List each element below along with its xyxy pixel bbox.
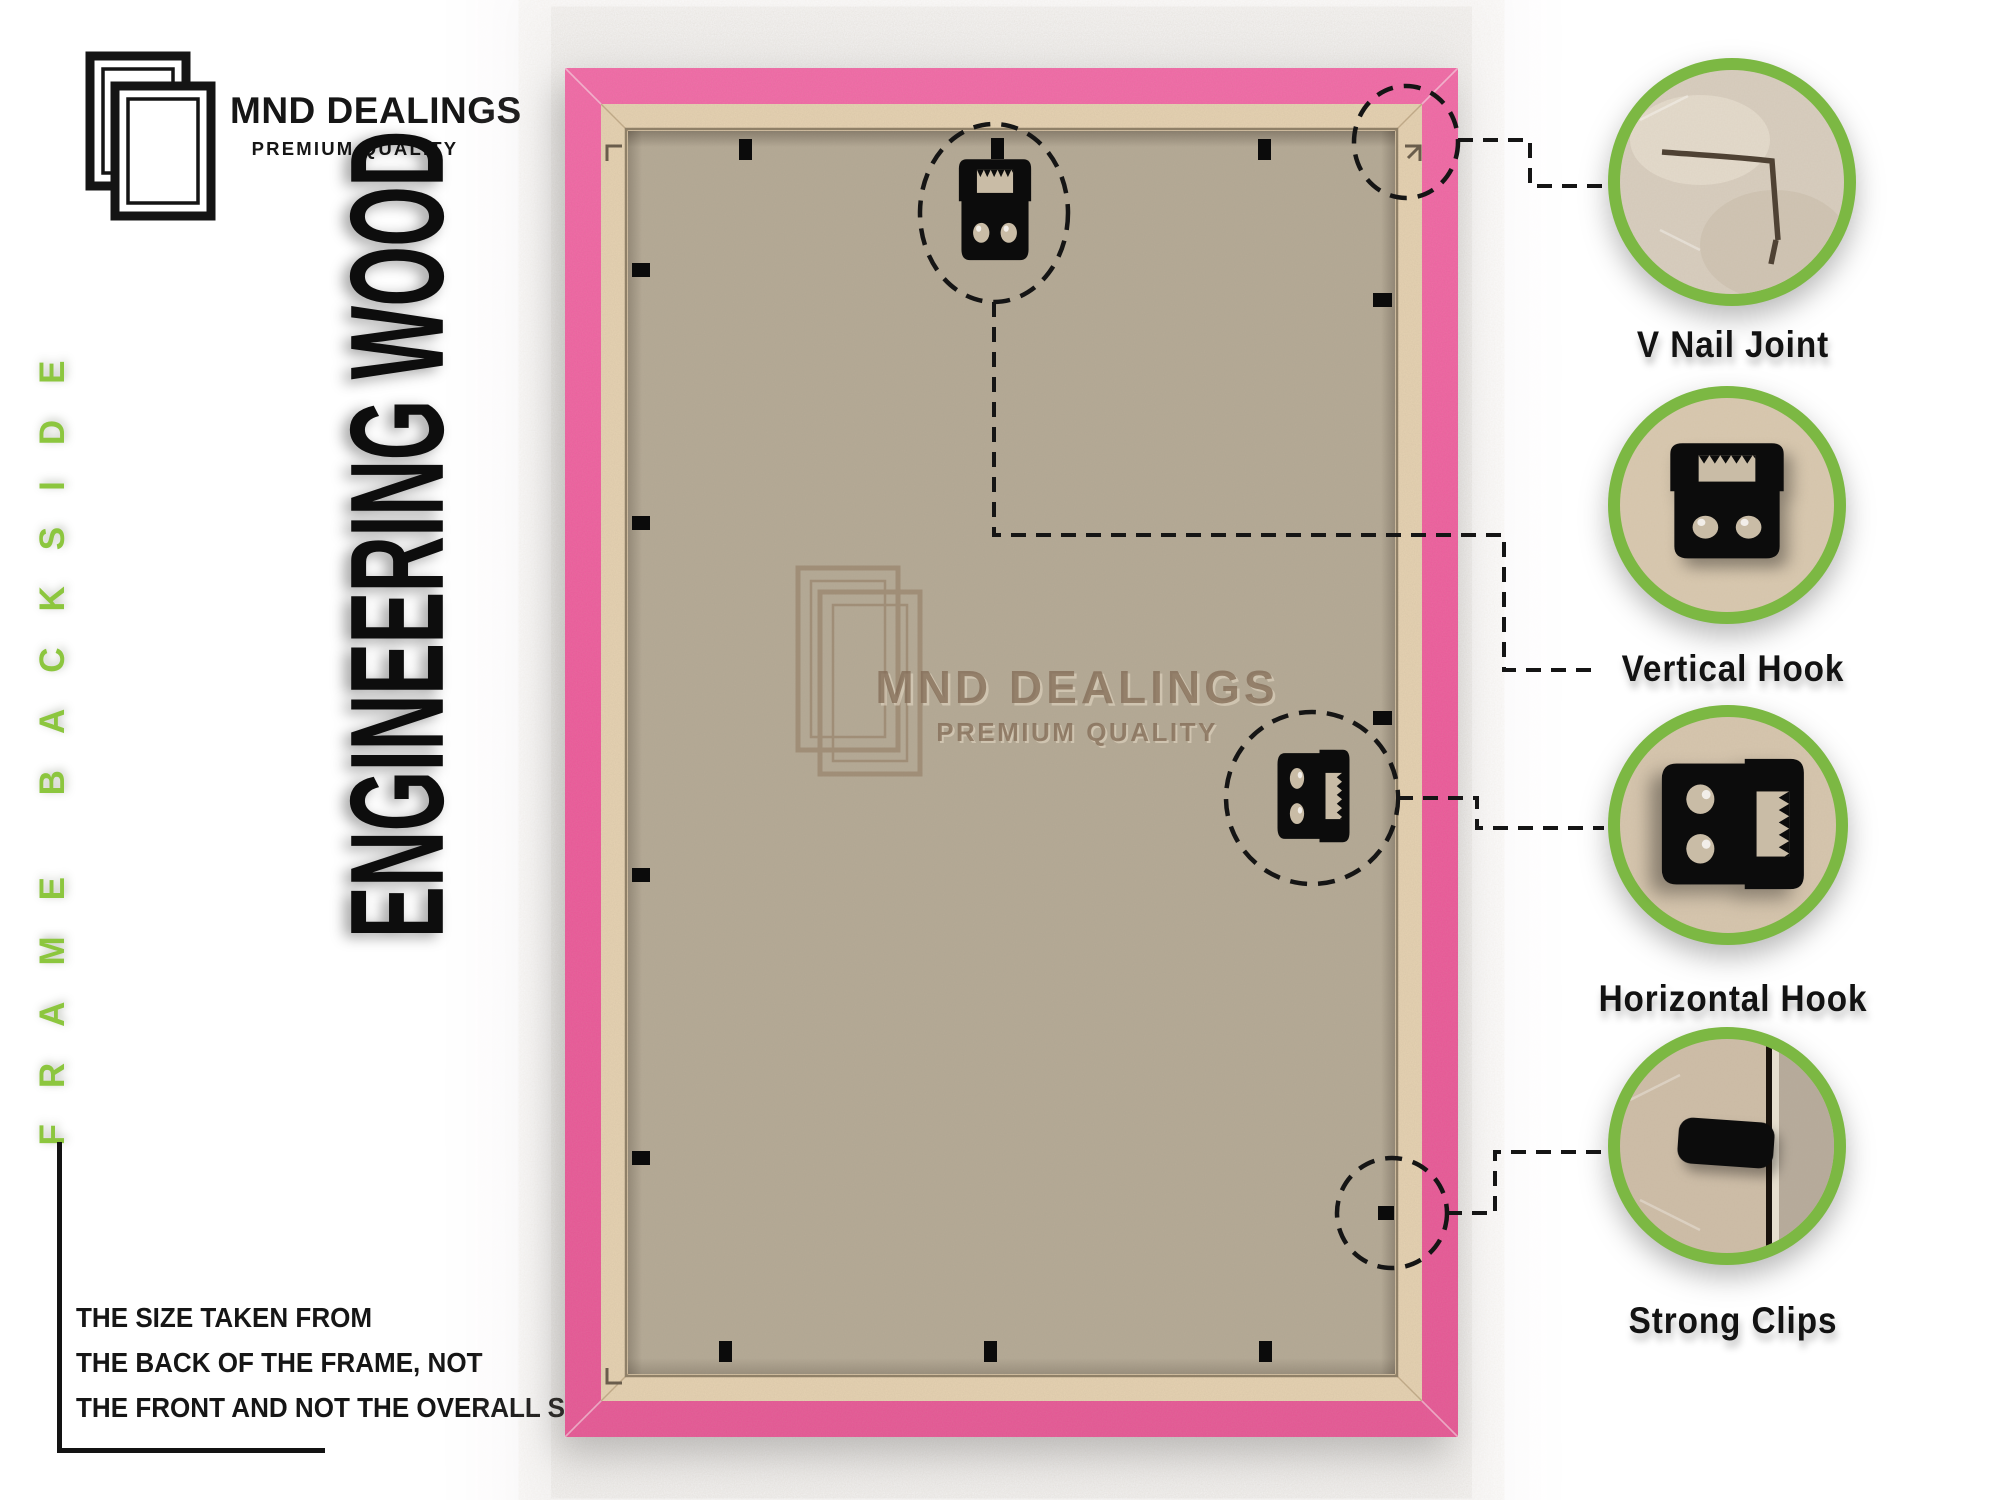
callout-circle-strong-clips [1608, 1027, 1908, 1270]
corner-vnail-mark-tr [1405, 146, 1420, 161]
connector-strong-clips [1447, 1152, 1604, 1213]
watermark-logo: MND DEALINGS MND DEALINGS PREMIUM QUALIT… [798, 568, 1281, 774]
green-ring [1608, 58, 1856, 306]
green-ring [1608, 386, 1846, 624]
size-note-line: THE SIZE TAKEN FROM [76, 1295, 476, 1340]
brand-name: MND DEALINGS [230, 90, 480, 132]
clip [1259, 1341, 1272, 1362]
watermark-tagline-highlight: PREMIUM QUALITY [938, 719, 1220, 749]
callout-label-horizontal-hook: Horizontal Hook [1517, 978, 1949, 1020]
watermark-name-highlight: MND DEALINGS [878, 664, 1281, 716]
corner-vnail-mark-tl [607, 146, 622, 161]
clip [1373, 711, 1392, 725]
clip [1378, 1206, 1394, 1220]
corner-vnail-marks [607, 146, 1420, 1383]
connector-vertical-hook [994, 302, 1596, 670]
horizontal-hook-hardware [1278, 750, 1350, 842]
highlight-circle-v-nail-joint [1354, 86, 1458, 198]
frame-backside-label: FRAME BACKSIDE [33, 305, 77, 1165]
highlight-circle-strong-clips [1337, 1158, 1447, 1268]
callout-label-vertical-hook: Vertical Hook [1517, 648, 1949, 690]
clip [632, 516, 650, 530]
poster: MND DEALINGS PREMIUM QUALITY FRAME BACKS… [0, 0, 2000, 1500]
vertical-hook-hardware [959, 159, 1031, 260]
clip [984, 1341, 997, 1362]
clip [1373, 293, 1392, 307]
wood-joint-groove [1662, 152, 1778, 264]
callout-label-strong-clips: Strong Clips [1517, 1300, 1949, 1342]
green-ring [1608, 705, 1848, 945]
callout-circle-vertical-hook [1608, 386, 1846, 624]
watermark-tagline: PREMIUM QUALITY [936, 717, 1218, 747]
strong-clip-zoom [1677, 1117, 1776, 1170]
clip [632, 868, 650, 882]
highlight-circle-horizontal-hook [1226, 712, 1398, 884]
clip [1258, 139, 1271, 160]
frame-edge-line [1766, 1030, 1772, 1270]
joint-gap-shadow [1622, 262, 1692, 300]
frame-outer-pink [565, 68, 1458, 1437]
clip [632, 1151, 650, 1165]
corner-vnail-mark-bl [607, 1368, 622, 1383]
callout-circle-v-nail-joint [1608, 58, 1856, 306]
callout-label-v-nail-joint: V Nail Joint [1517, 324, 1949, 366]
picture-frame-back: MND DEALINGS MND DEALINGS PREMIUM QUALIT… [565, 68, 1458, 1437]
highlight-circles [920, 86, 1458, 1268]
clip [632, 263, 650, 277]
frames-logo-icon [82, 50, 227, 225]
size-note: THE SIZE TAKEN FROM THE BACK OF THE FRAM… [57, 1142, 325, 1453]
frame-wood-strip [601, 104, 1422, 1401]
clip [991, 138, 1004, 159]
backing-clips [632, 138, 1394, 1362]
clip [719, 1341, 732, 1362]
callout-circle-horizontal-hook [1608, 705, 1848, 945]
vertical-hook-zoom [1670, 443, 1783, 558]
frame-backing-board [628, 131, 1395, 1374]
callout-connectors [994, 140, 1604, 1213]
highlight-circle-vertical-hook [920, 124, 1068, 302]
green-ring [1608, 1027, 1846, 1265]
horizontal-hook-zoom [1662, 759, 1804, 889]
clip [739, 139, 752, 160]
watermark-name: MND DEALINGS [875, 661, 1278, 713]
size-note-line: THE BACK OF THE FRAME, NOT [76, 1340, 476, 1385]
size-note-text: THE SIZE TAKEN FROM THE BACK OF THE FRAM… [76, 1295, 476, 1430]
connector-v-nail-joint [1458, 140, 1604, 186]
connector-horizontal-hook [1398, 798, 1604, 828]
mitre-seams [565, 68, 1458, 1437]
size-note-line: THE FRONT AND NOT THE OVERALL SIZE. [76, 1385, 476, 1430]
engineering-wood-label: ENGINEERING WOOD [315, 226, 481, 939]
